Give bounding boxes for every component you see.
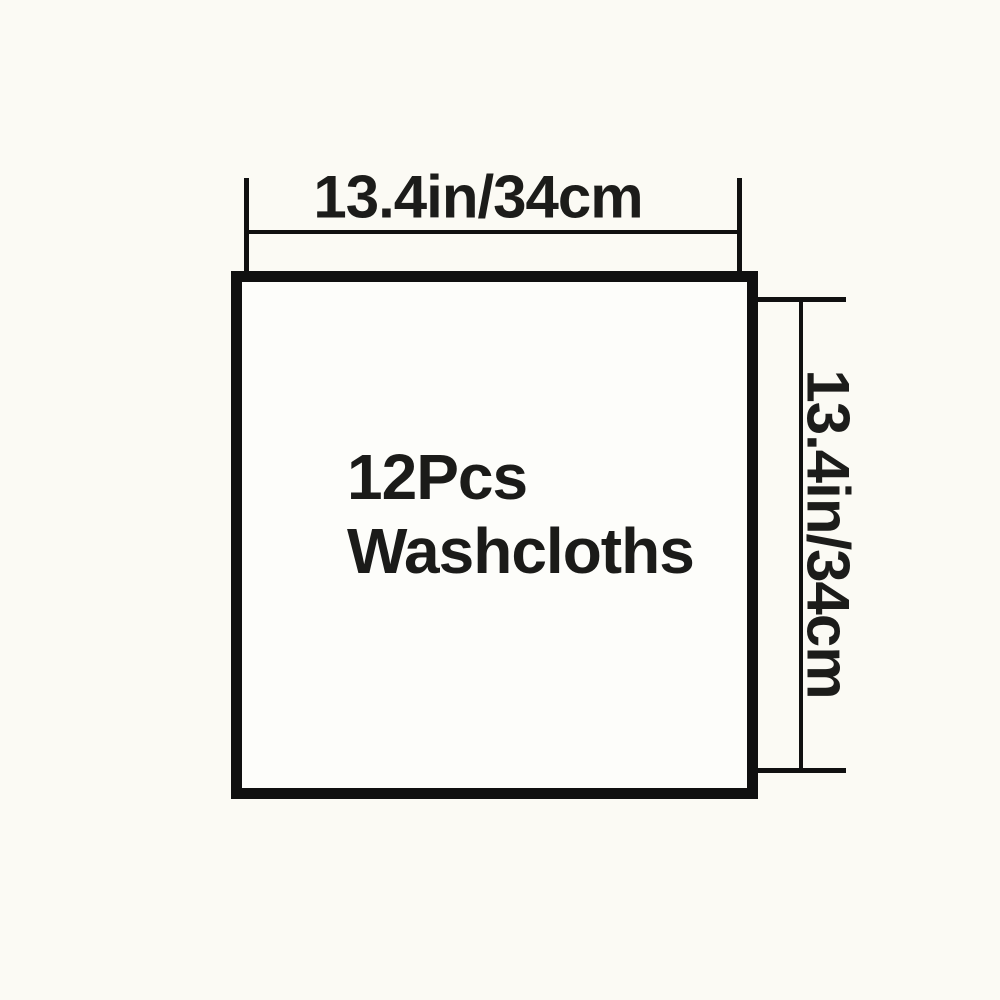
height-dimension-label: 13.4in/34cm	[794, 369, 863, 698]
height-dimension-top-tick	[756, 297, 846, 302]
washcloth-dimension-diagram: 13.4in/34cm 13.4in/34cm 12Pcs Washcloths	[0, 0, 1000, 1000]
width-dimension-left-tick	[244, 178, 249, 271]
product-label-line1: 12Pcs	[347, 440, 694, 514]
product-label: 12Pcs Washcloths	[347, 440, 694, 588]
width-dimension-line	[246, 230, 742, 234]
width-dimension-right-tick	[737, 178, 742, 271]
height-dimension-bottom-tick	[756, 768, 846, 773]
product-label-line2: Washcloths	[347, 514, 694, 588]
width-dimension-label: 13.4in/34cm	[313, 163, 642, 232]
